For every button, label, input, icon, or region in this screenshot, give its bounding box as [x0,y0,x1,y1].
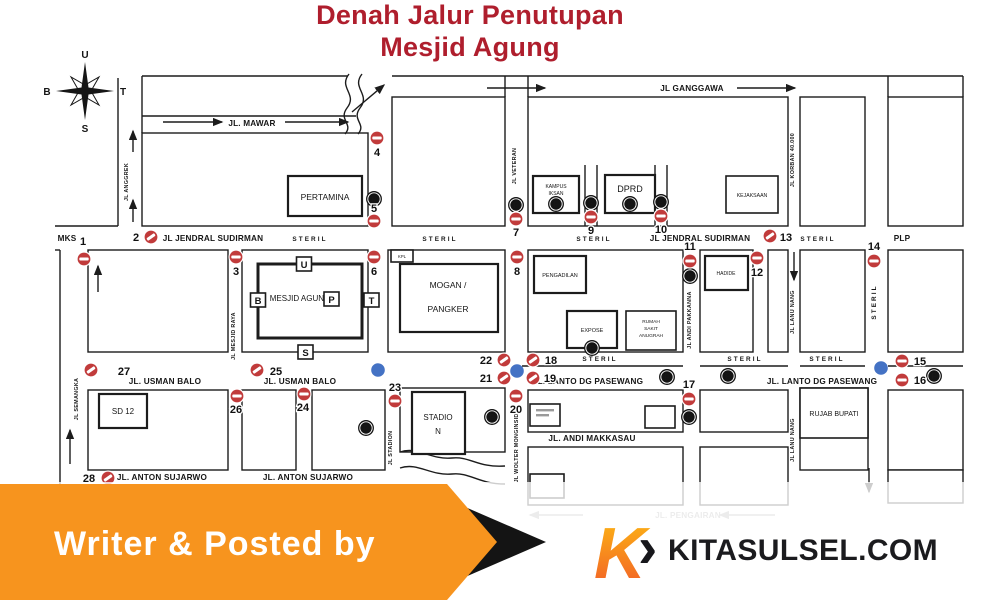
point-number-14: 14 [868,241,881,253]
steril-label-6: STERIL [727,356,762,363]
mosque-gate-u: U [301,260,308,271]
intersection-dots [371,361,888,378]
steril-label-vertical: STERIL [871,284,878,319]
street-label-lanu-nang-1: JL LANU NANG [790,290,796,334]
point-number-21: 21 [480,373,492,385]
map-title: Denah Jalur Penutupan Mesjid Agung [316,0,624,62]
point-number-10: 10 [655,224,667,236]
point-number-27: 27 [118,366,130,378]
point-number-6: 6 [371,266,377,278]
steril-label-4: STERIL [800,236,835,243]
building-mesjid-label: MESJID AGUNG [270,294,330,303]
point-number-11: 11 [684,241,696,253]
building-kpl-label: KPL [398,254,407,259]
street-label-usman-balo-1: JL. USMAN BALO [129,377,202,386]
street-label-sujarwo-2: JL. ANTON SUJARWO [263,473,354,482]
building-pertamina-label: PERTAMINA [301,192,350,202]
compass-west-label: B [43,87,50,98]
compass-main-star [56,62,114,120]
street-label-wolter: JL WOLTER MONGINSIDI [514,411,520,482]
point-number-16: 16 [914,375,926,387]
steril-label-5: STERIL [582,356,617,363]
compass-north-label: U [81,50,88,61]
point-number-4: 4 [374,147,381,159]
point-number-8: 8 [514,266,520,278]
compass-south-label: S [82,124,89,135]
map-canvas: P [0,0,1000,600]
point-number-2: 2 [133,232,139,244]
street-label-sudirman-west: JL JENDRAL SUDIRMAN [163,234,263,243]
street-label-ganggawa: JL GANGGAWA [660,84,723,93]
street-label-anggrek: JL ANGGREK [124,163,130,201]
point-number-1: 1 [80,236,86,248]
area-label-mks: MKS [58,234,77,243]
point-number-13: 13 [780,232,792,244]
point-number-12: 12 [751,267,763,279]
point-number-17: 17 [683,379,695,391]
point-number-24: 24 [297,402,310,414]
mosque-gate-t: T [369,296,375,307]
building-hadide-label: HADIDE [717,271,737,277]
building-sd12-label: SD 12 [112,407,135,416]
steril-label-3: STERIL [576,236,611,243]
building-rs-label1: RUMAH [642,319,660,325]
street-label-korban: JL KORBAN 40.000 [790,133,796,187]
mosque-gate-p: P [328,295,335,306]
area-label-plp: PLP [894,234,911,243]
building-rs-label2: SAKIT [644,326,658,332]
point-number-3: 3 [233,266,239,278]
building-expose-label: EXPOSE [581,328,604,334]
title-line-1: Denah Jalur Penutupan [316,0,624,30]
building-mogan-label2: PANGKER [428,304,469,314]
street-label-makkasau: JL. ANDI MAKKASAU [548,434,635,443]
small-box-1-textline [536,409,554,411]
road-closure-map: P [0,0,1000,600]
street-label-lanto-east: JL. LANTO DG PASEWANG [767,377,877,386]
point-number-26: 26 [230,404,242,416]
point-number-19: 19 [544,373,556,385]
building-stadion [412,392,465,454]
street-label-semangka: JL SEMANGKA [74,378,80,420]
point-number-20: 20 [510,404,522,416]
point-number-25: 25 [270,366,282,378]
building-rujab-label: RUJAB BUPATI [809,411,858,418]
point-number-23: 23 [389,382,401,394]
compass-rose: U B T S [43,50,126,135]
point-number-15: 15 [914,356,926,368]
steril-label-7: STERIL [809,356,844,363]
building-mogan-pangker [400,264,498,332]
point-number-7: 7 [513,227,519,239]
city-blocks [88,97,963,505]
street-label-stadion: JL STADION [388,431,394,466]
title-line-2: Mesjid Agung [380,32,560,62]
building-stadion-label1: STADIO [423,413,452,422]
building-pengadilan-label: PENGADILAN [542,273,577,279]
steril-label-1: STERIL [292,236,327,243]
mosque-gate-s: S [302,348,308,359]
small-box-2 [645,406,675,428]
street-label-pakkanna: JL ANDI PAKKANNA [687,291,693,348]
building-dprd-label: DPRD [617,184,643,194]
street-label-sujarwo-1: JL. ANTON SUJARWO [117,473,208,482]
banner-text: Writer & Posted by [54,525,376,563]
building-kejaksaan-label: KEJAKSAAN [737,193,768,199]
logo-site-name: KITASULSEL.COM [668,534,938,567]
building-rs-label3: ANUGRAH [639,333,664,339]
point-number-18: 18 [545,355,557,367]
mosque-gate-b: B [255,296,262,307]
street-label-mesjid-raya: JL MESJID RAYA [231,312,237,360]
compass-east-label: T [120,87,126,98]
steril-label-2: STERIL [422,236,457,243]
street-label-mawar: JL. MAWAR [228,119,275,128]
street-label-usman-balo-2: JL. USMAN BALO [264,377,337,386]
small-box-1-textline2 [536,414,549,416]
building-stadion-label2: N [435,427,441,436]
street-label-lanu-nang-2: JL LANU NANG [790,418,796,462]
building-kampus-label1: KAMPUS [545,184,567,190]
point-number-5: 5 [371,203,377,215]
point-number-9: 9 [588,225,594,237]
street-label-veteran: JL VETERAN [512,148,518,184]
point-number-22: 22 [480,355,492,367]
logo-chevron-icon: › [638,515,657,580]
building-mogan-label1: MOGAN / [430,280,467,290]
